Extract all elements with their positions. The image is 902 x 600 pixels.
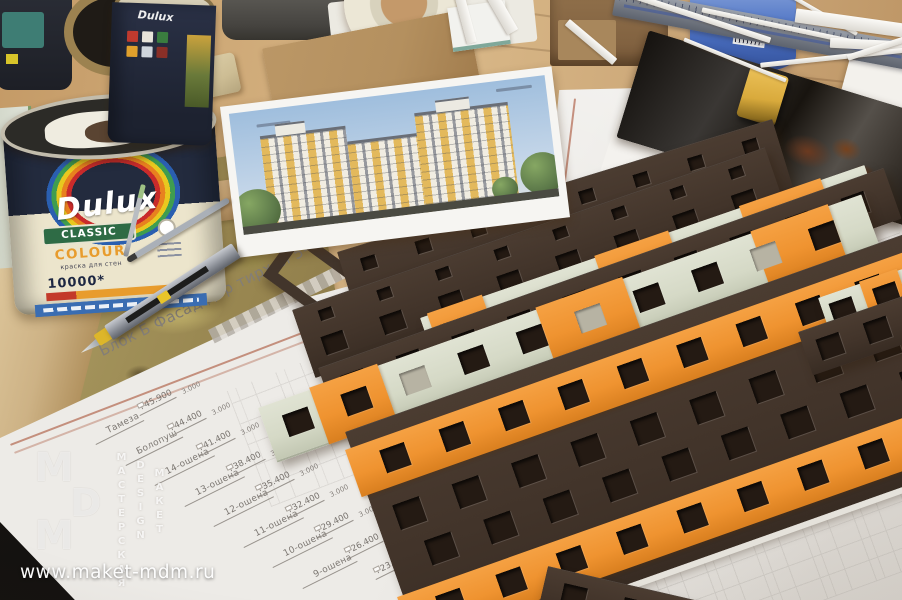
- window-cutout: [611, 205, 628, 220]
- window-cutout: [661, 447, 696, 481]
- small-paint-can: [0, 0, 72, 90]
- window-cutout: [633, 282, 666, 313]
- window-cutout: [602, 468, 637, 502]
- paint-color-chip: [141, 46, 152, 57]
- print-caption-mark: [496, 85, 532, 92]
- window-cutout: [552, 225, 569, 240]
- window-cutout: [669, 185, 686, 200]
- workshop-photo: Блок Б Фасад дар тирхои 5-1 ТамезаБолопу…: [0, 0, 902, 600]
- window-cutout: [721, 426, 756, 460]
- window-cutout: [630, 412, 665, 446]
- window-cutout: [493, 246, 510, 261]
- watermark-studio-line: DESIGN: [135, 460, 146, 572]
- watermark-studio-line: МАКЕТ: [154, 468, 165, 572]
- window-cutout: [424, 532, 459, 566]
- watermark-url: www.maket-mdm.ru: [20, 562, 215, 583]
- window-cutout: [863, 316, 893, 345]
- window-cutout: [749, 370, 784, 404]
- window-cutout: [632, 171, 650, 188]
- window-cutout: [399, 365, 432, 396]
- window-cutout: [570, 433, 605, 467]
- window-cutout: [728, 165, 745, 180]
- watermark-studio-line: МАСТЕРСКАЯ: [116, 452, 127, 572]
- paint-color-chip: [127, 31, 138, 42]
- window-cutout: [780, 405, 815, 439]
- paint-color-chip: [157, 32, 168, 43]
- paint-color-chip: [142, 31, 153, 42]
- window-cutout: [452, 475, 487, 509]
- yellow-paint-sponge: [736, 66, 789, 127]
- window-cutout: [414, 238, 432, 255]
- window-cutout: [379, 310, 407, 335]
- watermark-letter-d: D: [70, 484, 102, 522]
- watermark-letter-m1: М: [34, 448, 74, 488]
- window-cutout: [457, 344, 490, 375]
- window-cutout: [840, 384, 875, 418]
- window-cutout: [815, 332, 845, 361]
- print-sky: [229, 75, 559, 235]
- window-cutout: [689, 391, 724, 425]
- second-dulux-can: Dulux: [107, 0, 220, 148]
- window-cutout: [376, 286, 393, 301]
- window-cutout: [578, 188, 596, 205]
- window-cutout: [435, 266, 452, 281]
- window-cutout: [320, 330, 348, 355]
- window-cutout: [560, 583, 588, 600]
- window-cutout: [691, 262, 724, 293]
- window-cutout: [483, 511, 518, 545]
- paint-color-chip: [156, 47, 167, 58]
- window-cutout: [511, 454, 546, 488]
- window-cutout: [543, 490, 578, 524]
- watermark-letter-m2: М: [34, 516, 74, 556]
- window-cutout: [282, 406, 315, 437]
- paint-color-chip: [126, 46, 137, 57]
- window-cutout: [318, 306, 335, 321]
- window-cutout: [392, 496, 427, 530]
- window-cutout: [360, 254, 378, 271]
- can2-color-panel: [185, 35, 211, 108]
